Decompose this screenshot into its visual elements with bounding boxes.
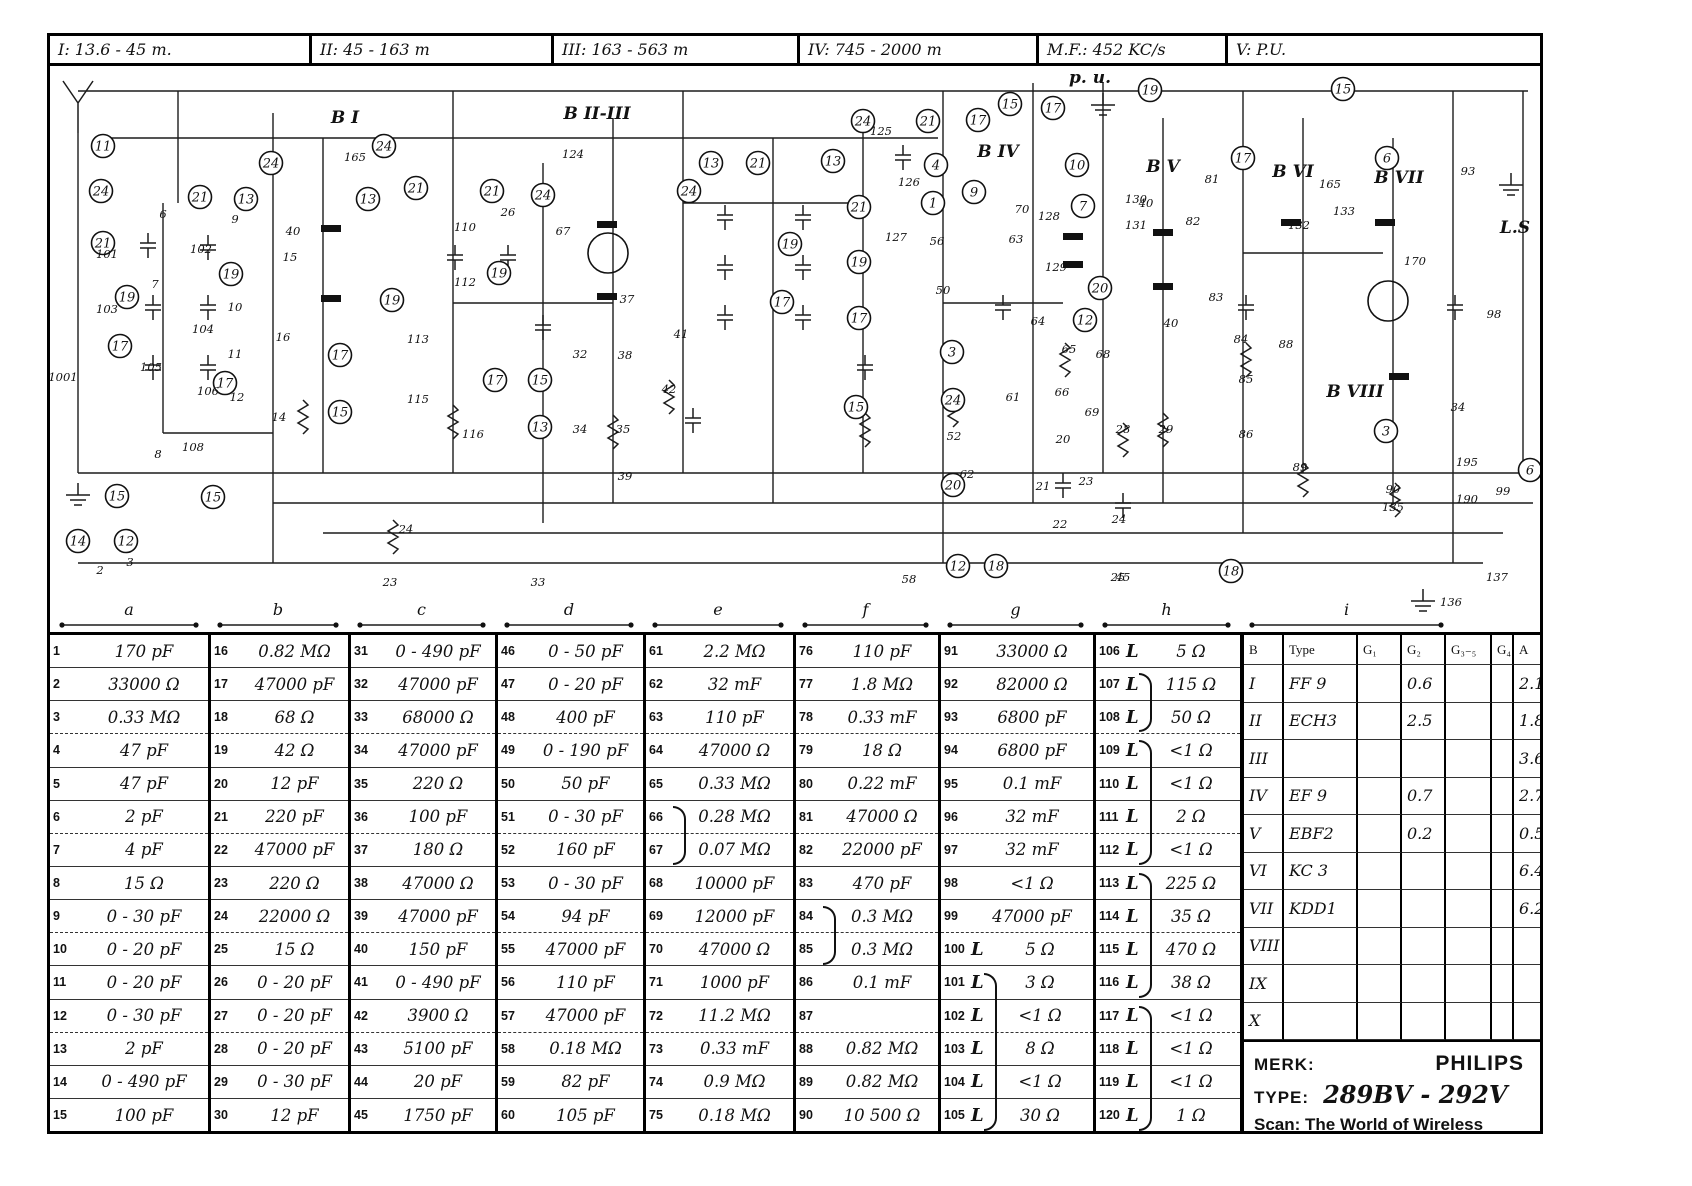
part-number: 90 [796,1108,826,1122]
component-number: 21 [1035,479,1051,493]
component-number: 61 [1006,390,1021,404]
part-number: 24 [211,909,241,923]
svg-text:11: 11 [95,140,112,155]
part-value: 18 Ω [826,741,938,760]
parts-column-6: 76110 pF771.8 MΩ780.33 mF7918 Ω800.22 mF… [793,635,938,1131]
part-value: 20 pF [381,1072,495,1091]
svg-text:6: 6 [1383,152,1391,167]
part-number: 120 [1096,1108,1126,1122]
part-row: 36100 pF [351,801,495,834]
component-number: 68 [1096,347,1111,361]
circled-ref: 18 [1220,560,1243,583]
component-number: 81 [1205,172,1220,186]
core-bar [1153,283,1173,290]
svg-text:15: 15 [205,491,222,506]
tube-g2 [1402,1003,1446,1041]
tube-g2 [1402,928,1446,966]
span-dot [1438,622,1443,627]
part-value: 0.82 MΩ [826,1072,938,1091]
part-number: 108 [1096,710,1126,724]
part-row: 116L38 Ω [1096,966,1240,999]
part-row: 9133000 Ω [941,635,1093,668]
inductor-mark: L [1126,1071,1142,1092]
part-row: 35220 Ω [351,768,495,801]
component-number: 23 [1078,474,1094,488]
tube-g4 [1492,965,1514,1003]
circled-ref: 13 [357,188,380,211]
part-row: 423900 Ω [351,1000,495,1033]
component-number: 133 [1333,204,1355,218]
part-number: 5 [50,777,80,791]
component-number: 2 [95,563,103,577]
svg-text:20: 20 [1091,282,1109,297]
block-label: L.S [1499,218,1530,238]
part-value: <1 Ω [1142,1006,1240,1025]
inductor-mark: L [971,1071,987,1092]
part-value: 42 Ω [241,741,348,760]
svg-text:24: 24 [262,157,280,172]
part-value: 105 pF [528,1106,643,1125]
part-value: 15 Ω [241,940,348,959]
part-number: 103 [941,1042,971,1056]
part-value: 0.33 MΩ [80,708,208,727]
part-number: 88 [796,1042,826,1056]
tube-type [1284,1003,1358,1041]
inductor-mark: L [1126,1105,1142,1126]
component-number: 127 [885,230,908,244]
part-value: 5 Ω [987,940,1093,959]
group-letter: c [417,600,426,619]
component-number: 102 [190,242,212,256]
part-row: 109L<1 Ω [1096,734,1240,767]
part-number: 20 [211,777,241,791]
tube-type: ECH3 [1284,703,1358,741]
component-number: 40 [1138,196,1154,210]
waveband-cell-5: M.F.: 452 KC/s [1039,36,1228,63]
tube-a: 6.2 [1514,890,1540,928]
part-value: 0 - 30 pF [80,907,208,926]
part-value: <1 Ω [1142,1039,1240,1058]
part-row: 23220 Ω [211,867,348,900]
part-row: 946800 pF [941,734,1093,767]
inductor-mark: L [1126,674,1142,695]
part-row: 800.22 mF [796,768,938,801]
tube-stage: IV [1244,778,1284,816]
part-number: 73 [646,1042,676,1056]
tube-g1 [1358,928,1402,966]
span-dot [504,622,509,627]
part-number: 76 [796,644,826,658]
svg-text:18: 18 [1223,565,1240,580]
circuit-schematic: 1124211917151412211319171524132421191715… [50,66,1540,632]
part-row: 3012 pF [211,1099,348,1131]
tube-type [1284,740,1358,778]
part-value: 110 pF [826,642,938,661]
svg-text:24: 24 [375,140,393,155]
part-value: 47000 pF [381,907,495,926]
circled-ref: 4 [925,154,948,177]
group-letter: f [862,600,872,619]
tube-g35 [1446,890,1492,928]
circled-ref: 19 [779,233,802,256]
group-letter: g [1010,600,1020,619]
part-value: 10 500 Ω [826,1106,938,1125]
span-dot [333,622,338,627]
part-value: 2 pF [80,807,208,826]
core-bar [1375,219,1395,226]
part-value: 47000 Ω [381,874,495,893]
svg-text:3: 3 [948,346,956,361]
svg-text:21: 21 [407,182,425,197]
tube-g35 [1446,740,1492,778]
component-number: 6 [159,207,166,221]
part-number: 36 [351,810,381,824]
tube-g1 [1358,778,1402,816]
tube-g4 [1492,740,1514,778]
circled-ref: 21 [481,180,504,203]
part-value: 3900 Ω [381,1006,495,1025]
block-label: B VII [1373,168,1424,188]
part-row: 112L<1 Ω [1096,834,1240,867]
part-value: 5 Ω [1142,642,1240,661]
tube-g35 [1446,703,1492,741]
tube-type [1284,928,1358,966]
component-number: 1001 [50,370,78,384]
part-value: 47000 Ω [676,940,793,959]
span-dot [217,622,222,627]
part-value: 100 pF [80,1106,208,1125]
component-number: 135 [1382,500,1404,514]
component-number: 131 [1125,218,1147,232]
component-number: 70 [1015,202,1030,216]
svg-text:13: 13 [825,155,842,170]
part-value: 150 pF [381,940,495,959]
circled-ref: 19 [116,286,139,309]
svg-text:17: 17 [1235,152,1252,167]
svg-text:4: 4 [931,159,940,174]
part-value: 0.82 MΩ [241,642,348,661]
tube-stage: VI [1244,853,1284,891]
part-number: 49 [498,743,528,757]
component-number: 16 [276,330,291,344]
tube-g1 [1358,665,1402,703]
part-number: 93 [941,710,971,724]
tube-a: 1.8 [1514,703,1540,741]
part-value: 0 - 190 pF [528,741,643,760]
component-number: 3 [126,555,133,569]
component-number: 190 [1456,492,1478,506]
part-number: 113 [1096,876,1126,890]
part-row: 3368000 Ω [351,701,495,734]
part-number: 9 [50,909,80,923]
tube-data-table: BTypeG₁G₂G₃₋₅G₄AIFF 90.62.1IIECH32.51.8I… [1240,632,1540,1131]
part-number: 83 [796,876,826,890]
component-number: 103 [96,302,118,316]
part-value: <1 Ω [1142,840,1240,859]
component-number: 34 [573,422,588,436]
part-value: 100 pF [381,807,495,826]
part-row: 2012 pF [211,768,348,801]
circled-ref: 17 [1232,147,1255,170]
group-letter: e [713,600,722,619]
tube-g35 [1446,665,1492,703]
part-row: 233000 Ω [50,668,208,701]
component-number: 26 [500,205,516,219]
waveband-cell-2: II: 45 - 163 m [312,36,554,63]
part-number: 65 [646,777,676,791]
ground-icon [1411,589,1435,611]
part-row: 3247000 pF [351,668,495,701]
waveband-cell-6: V: P.U. [1228,36,1540,63]
part-value: 33000 Ω [80,675,208,694]
tube-envelope [1368,281,1408,321]
part-number: 11 [50,975,80,989]
circled-ref: 17 [109,335,132,358]
part-number: 109 [1096,743,1126,757]
part-row: 5494 pF [498,900,643,933]
part-value: 32 mF [676,675,793,694]
part-row: 6810000 pF [646,867,793,900]
block-label: B IV [976,142,1020,162]
part-row: 740.9 MΩ [646,1066,793,1099]
part-value: 82000 Ω [971,675,1093,694]
part-number: 115 [1096,942,1126,956]
circled-ref: 17 [771,291,794,314]
part-value: 4 pF [80,840,208,859]
svg-text:10: 10 [1069,159,1086,174]
svg-text:18: 18 [988,560,1005,575]
svg-text:15: 15 [532,374,549,389]
circled-ref: 11 [92,135,115,158]
part-value: <1 Ω [1142,1072,1240,1091]
part-number: 82 [796,843,826,857]
parts-column-1: 1170 pF233000 Ω30.33 MΩ447 pF547 pF62 pF… [50,635,208,1131]
part-number: 117 [1096,1009,1126,1023]
part-value: 0.28 MΩ [676,807,793,826]
component-number: 132 [1288,218,1310,232]
tube-g2: 2.5 [1402,703,1446,741]
span-dot [778,622,783,627]
block-label: p. u. [1069,68,1111,88]
part-value: 110 pF [676,708,793,727]
component-number: 35 [616,422,631,436]
svg-text:12: 12 [118,535,135,550]
svg-text:13: 13 [532,421,549,436]
component-number: 50 [936,283,951,297]
component-number: 128 [1038,209,1060,223]
tube-g35 [1446,1003,1492,1041]
component-number: 15 [283,250,298,264]
part-number: 92 [941,677,971,691]
part-value: 38 Ω [1142,973,1240,992]
part-row: 100 - 20 pF [50,933,208,966]
part-number: 55 [498,942,528,956]
part-number: 42 [351,1009,381,1023]
part-number: 25 [211,942,241,956]
part-number: 59 [498,1075,528,1089]
inductor-mark: L [1126,806,1142,827]
svg-text:17: 17 [487,374,504,389]
circled-ref: 24 [260,152,283,175]
circled-ref: 3 [1375,420,1398,443]
part-number: 64 [646,743,676,757]
block-label: B V [1145,157,1181,177]
component-number: 45 [1115,570,1131,584]
component-number: 9 [231,212,238,226]
part-value: 0 - 50 pF [528,642,643,661]
part-value: 82 pF [528,1072,643,1091]
circled-ref: 21 [747,152,770,175]
tube-g1 [1358,890,1402,928]
part-value: 0 - 490 pF [381,642,495,661]
core-bar [321,225,341,232]
part-value: 0.07 MΩ [676,840,793,859]
part-row: 936800 pF [941,701,1093,734]
circled-ref: 12 [1074,309,1097,332]
part-number: 80 [796,777,826,791]
part-value: 400 pF [528,708,643,727]
part-number: 119 [1096,1075,1126,1089]
part-row: 140 - 490 pF [50,1066,208,1099]
capacitor-symbols [140,145,1463,518]
part-row: 460 - 50 pF [498,635,643,668]
span-dot [59,622,64,627]
part-number: 18 [211,710,241,724]
core-bar [1153,229,1173,236]
circled-ref: 21 [848,196,871,219]
part-number: 118 [1096,1042,1126,1056]
part-value: 180 Ω [381,840,495,859]
svg-text:24: 24 [680,185,698,200]
part-row: 119L<1 Ω [1096,1066,1240,1099]
part-value: <1 Ω [987,1072,1093,1091]
component-number: 105 [140,360,162,374]
part-row: 1942 Ω [211,734,348,767]
circled-ref: 13 [700,152,723,175]
part-value: 47000 pF [381,675,495,694]
circled-ref: 12 [115,530,138,553]
tube-g1 [1358,853,1402,891]
part-number: 72 [646,1009,676,1023]
part-number: 13 [50,1042,80,1056]
circled-ref: 21 [917,110,940,133]
circled-ref: 19 [848,251,871,274]
span-dot [652,622,657,627]
scanned-schematic-page: I: 13.6 - 45 m.II: 45 - 163 mIII: 163 - … [0,0,1692,1186]
ground-icon [66,483,90,505]
part-value: 0.33 mF [826,708,938,727]
span-dot [193,622,198,627]
part-row: 950.1 mF [941,768,1093,801]
component-number: 104 [192,322,214,336]
component-number: 125 [870,124,892,138]
parts-column-3: 310 - 490 pF3247000 pF3368000 Ω3447000 p… [348,635,495,1131]
part-row: 435100 pF [351,1033,495,1066]
part-row: 120 - 30 pF [50,1000,208,1033]
part-number: 56 [498,975,528,989]
part-row: 105L30 Ω [941,1099,1093,1131]
tube-type: FF 9 [1284,665,1358,703]
part-row: 8147000 Ω [796,801,938,834]
part-row: 880.82 MΩ [796,1033,938,1066]
svg-text:24: 24 [92,185,110,200]
svg-text:7: 7 [1079,200,1088,215]
part-number: 15 [50,1108,80,1122]
part-row: 530 - 30 pF [498,867,643,900]
svg-text:3: 3 [1382,425,1390,440]
component-number: 112 [454,275,476,289]
inductor-mark: L [1126,1005,1142,1026]
circled-ref: 19 [1139,79,1162,102]
part-value: 50 pF [528,774,643,793]
part-number: 70 [646,942,676,956]
core-bar [597,221,617,228]
tube-header: G₄ [1492,635,1514,665]
part-value: 32 mF [971,807,1093,826]
group-letter: b [273,600,283,619]
part-number: 43 [351,1042,381,1056]
component-number: 195 [1456,455,1478,469]
part-row: 580.18 MΩ [498,1033,643,1066]
block-label: B VIII [1325,382,1384,402]
component-number: 69 [1085,405,1100,419]
tube-g4 [1492,928,1514,966]
part-number: 89 [796,1075,826,1089]
part-value: 220 Ω [381,774,495,793]
part-row: 63110 pF [646,701,793,734]
component-number: 90 [1386,482,1401,496]
type-label: TYPE: [1254,1088,1309,1108]
part-number: 27 [211,1009,241,1023]
part-row: 2247000 pF [211,834,348,867]
tube-g35 [1446,815,1492,853]
core-bar [321,295,341,302]
component-number: 24 [398,522,414,536]
part-number: 16 [211,644,241,658]
part-value: 0 - 30 pF [528,807,643,826]
component-number: 38 [618,348,633,362]
part-value: 0 - 30 pF [80,1006,208,1025]
part-row: 612.2 MΩ [646,635,793,668]
part-value: 12 pF [241,774,348,793]
part-value: 225 Ω [1142,874,1240,893]
tube-stage: III [1244,740,1284,778]
component-number: 23 [382,575,398,589]
part-value: 35 Ω [1142,907,1240,926]
part-number: 87 [796,1009,826,1023]
tube-g1 [1358,965,1402,1003]
part-number: 95 [941,777,971,791]
part-number: 60 [498,1108,528,1122]
part-value: 170 pF [80,642,208,661]
circled-ref: 14 [67,530,90,553]
circled-ref: 19 [220,263,243,286]
circled-ref: 24 [90,180,113,203]
part-row: 15100 pF [50,1099,208,1131]
circled-ref: 24 [678,180,701,203]
part-number: 21 [211,810,241,824]
part-value: 160 pF [528,840,643,859]
tube-g1 [1358,703,1402,741]
inductor-mark: L [1126,1038,1142,1059]
part-row: 1170 pF [50,635,208,668]
svg-text:19: 19 [851,256,868,271]
component-number: 115 [407,392,429,406]
component-number: 82 [1186,214,1201,228]
tube-header: A [1514,635,1540,665]
component-number: 33 [531,575,546,589]
svg-text:19: 19 [1142,84,1159,99]
